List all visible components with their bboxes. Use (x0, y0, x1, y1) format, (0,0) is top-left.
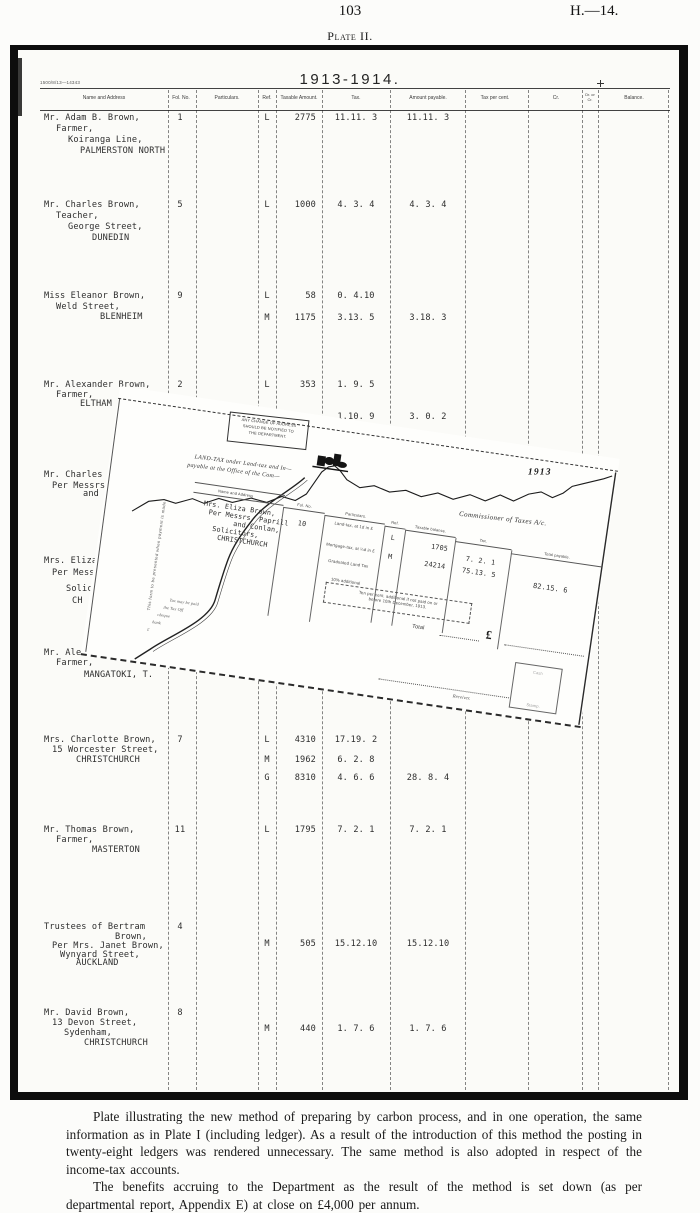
ledger-column-header: Tax per cent. (459, 96, 531, 101)
entry-taxable-amount: 353 (272, 380, 316, 390)
receipt-stamp-box: Cash Stamp. (509, 662, 563, 714)
taxpayer-name-line: Farmer, (56, 124, 93, 134)
folio-number: 8 (165, 1008, 195, 1018)
taxpayer-name-line: CH (72, 596, 83, 606)
taxpayer-name-line: Miss Eleanor Brown, (44, 291, 145, 301)
taxpayer-name-line: Koiranga Line, (68, 135, 143, 145)
total-label: Total (398, 622, 438, 634)
taxpayer-name-line: George Street, (68, 222, 143, 232)
entry-taxable-amount: 4310 (272, 735, 316, 745)
scanned-report-page: { "page": { "number": "103", "report_cod… (0, 0, 700, 1204)
total-dotted-leader (439, 635, 479, 642)
ledger-column-header: Amount payable. (392, 96, 464, 101)
total-dotted-leader (505, 644, 584, 657)
entry-tax: 0. 4.10 (324, 291, 388, 301)
entry-taxable-amount: 505 (272, 939, 316, 949)
caption-paragraph-1: Plate illustrating the new method of pre… (66, 1108, 642, 1178)
folio-number: 5 (165, 200, 195, 210)
taxpayer-name-line: Farmer, (56, 835, 93, 845)
ledger-column-header: Dr. or Cr. (577, 92, 603, 102)
receiver-label: Receiver. (427, 690, 497, 705)
entry-tax: 17.19. 2 (324, 735, 388, 745)
payment-note-fragment: £ (147, 626, 150, 631)
entry-amount-payable: 1. 7. 6 (394, 1024, 462, 1034)
folio-number: 9 (165, 291, 195, 301)
taxpayer-name-line: Teacher, (56, 211, 99, 221)
taxpayer-name-line: Per Messrs. (52, 481, 111, 491)
entry-tax: 6. 2. 8 (324, 755, 388, 765)
ledger-year-title: 1913-1914. (160, 71, 540, 88)
taxpayer-name-line: Mr. David Brown, (44, 1008, 129, 1018)
entry-amount-payable: 3.18. 3 (394, 313, 462, 323)
entry-taxable-amount: 1000 (272, 200, 316, 210)
entry-taxable-amount: 440 (272, 1024, 316, 1034)
taxpayer-name-line: Mr. Thomas Brown, (44, 825, 135, 835)
page-number: 103 (330, 3, 370, 20)
demand-particulars-line: Graduated Land Tax (318, 556, 379, 570)
taxpayer-name-line: Sydenham, (64, 1028, 112, 1038)
plate-title: Plate II. (300, 29, 400, 44)
taxpayer-name-line: Mr. Adam B. Brown, (44, 113, 140, 123)
year-mark: 1913 (528, 467, 552, 477)
folio-number: 7 (165, 735, 195, 745)
entry-amount-payable: 4. 3. 4 (394, 200, 462, 210)
demand-folio-number: 10 (287, 518, 318, 530)
entry-taxable-amount: 8310 (272, 773, 316, 783)
entry-taxable-amount: 1962 (272, 755, 316, 765)
ledger-column-header: Cr. (536, 96, 576, 101)
demand-entry-taxable: 24214 (395, 556, 446, 571)
entry-tax: 1. 7. 6 (324, 1024, 388, 1034)
entry-amount-payable: 11.11. 3 (394, 113, 462, 123)
currency-sign: £ (485, 628, 493, 644)
taxpayer-name-line: Mrs. Charlotte Brown, (44, 735, 156, 745)
crest-vignette (312, 451, 350, 473)
demand-entry-tax: 75.13. 5 (453, 565, 504, 580)
taxpayer-name-line: and (83, 489, 99, 499)
taxpayer-name-line: Farmer, (56, 658, 93, 668)
taxpayer-name-line: MASTERTON (92, 845, 140, 855)
stamp-box-top-label: Cash (515, 667, 561, 679)
demand-particulars-line: Land-tax, at 1d in £ (323, 519, 384, 533)
taxpayer-name-line: ELTHAM (80, 399, 112, 409)
entry-amount-payable: 7. 2. 1 (394, 825, 462, 835)
entry-tax: 3.13. 5 (324, 313, 388, 323)
taxpayer-name-line: DUNEDIN (92, 233, 129, 243)
ledger-column-header: Tax. (331, 96, 381, 101)
taxpayer-name-line: CHRISTCHURCH (76, 755, 140, 765)
ledger-rule-header (40, 110, 670, 111)
taxpayer-name-line: Solic (66, 584, 93, 594)
entry-amount-payable: 15.12.10 (394, 939, 462, 949)
taxpayer-name-line: 15 Worcester Street, (52, 745, 158, 755)
entry-tax: 1. 9. 5 (324, 380, 388, 390)
ledger-column-header: Name and Address (39, 96, 169, 101)
caption-paragraph-2: The benefits accruing to the Department … (66, 1178, 642, 1213)
address-change-stamp: ANY CHANGE OF ADDRESSSHOULD BE NOTIFIED … (227, 412, 310, 451)
ink-mark (18, 58, 22, 116)
taxpayer-name-line: 13 Devon Street, (52, 1018, 137, 1028)
demand-total-payable: 82.15. 6 (520, 580, 581, 597)
ledger-column-line (668, 90, 669, 1090)
entry-taxable-amount: 1795 (272, 825, 316, 835)
taxpayer-name-line: CHRISTCHURCH (84, 1038, 148, 1048)
ledger-form-code: 1500/8/13—14343 (40, 80, 80, 85)
ink-mark (600, 80, 601, 87)
folio-number: 1 (165, 113, 195, 123)
present-form-side-note: This form to be presented when payment i… (146, 454, 174, 611)
folio-number: 4 (165, 922, 195, 932)
stamp-box-bottom-label: Stamp. (510, 700, 556, 712)
entry-tax: 11.11. 3 (324, 113, 388, 123)
entry-tax: 4. 6. 6 (324, 773, 388, 783)
ledger-rule-top (40, 88, 670, 89)
taxpayer-name-line: AUCKLAND (76, 958, 119, 968)
payment-note-fragment: bank (152, 619, 161, 625)
folio-number: 2 (165, 380, 195, 390)
ledger-column-header: Balance. (606, 96, 662, 101)
entry-tax: 15.12.10 (324, 939, 388, 949)
taxpayer-name-line: MANGATOKI, T. (84, 670, 153, 680)
entry-taxable-amount: 1175 (272, 313, 316, 323)
demand-column-line (309, 515, 326, 622)
taxpayer-name-line: Mr. Charles Brown, (44, 200, 140, 210)
entry-taxable-amount: 58 (272, 291, 316, 301)
entry-amount-payable: 3. 0. 2 (394, 412, 462, 422)
entry-taxable-amount: 2775 (272, 113, 316, 123)
account-title: Commissioner of Taxes A/c. (423, 506, 583, 532)
payment-note-fragment: cheque (157, 612, 170, 619)
taxpayer-name-line: BLENHEIM (100, 312, 143, 322)
ledger-column-header: Particulars. (197, 96, 257, 101)
demand-entry-taxable: 1705 (398, 538, 449, 553)
plate-caption: Plate illustrating the new method of pre… (66, 1108, 642, 1213)
payment-note-fragment: the Tax Off (163, 605, 184, 613)
taxpayer-name-line: Trustees of Bertram (44, 922, 145, 932)
taxpayer-name-line: PALMERSTON NORTH (80, 146, 165, 156)
entry-tax: 4. 3. 4 (324, 200, 388, 210)
report-code: H.—14. (570, 3, 650, 20)
folio-number: 11 (165, 825, 195, 835)
taxpayer-name-line: Weld Street, (56, 302, 120, 312)
entry-amount-payable: 28. 8. 4 (394, 773, 462, 783)
entry-tax: 7. 2. 1 (324, 825, 388, 835)
demand-particulars-line: Mortgage-tax, at ¼d in £ (320, 541, 381, 555)
